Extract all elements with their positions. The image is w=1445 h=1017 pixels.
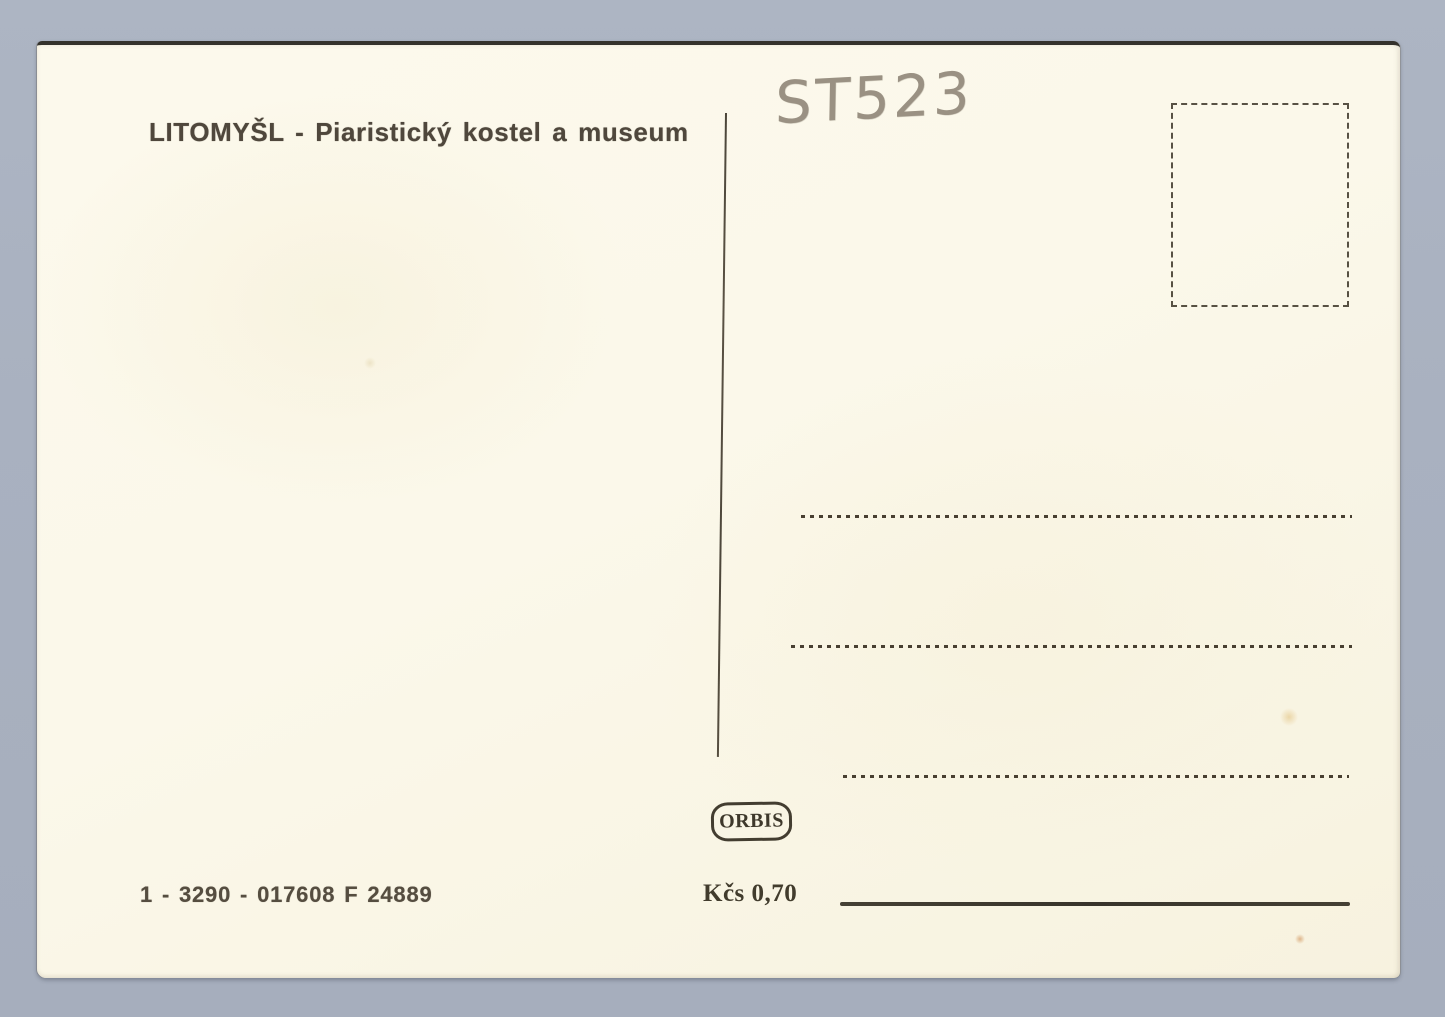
handwritten-inventory-number: ST523 xyxy=(775,64,974,132)
address-dotted-line-3 xyxy=(843,775,1349,778)
postcard-caption: LITOMYŠL - Piaristický kostel a museum xyxy=(149,117,689,148)
photo-background: LITOMYŠL - Piaristický kostel a museum S… xyxy=(0,0,1445,1017)
postcard-back: LITOMYŠL - Piaristický kostel a museum S… xyxy=(37,41,1400,978)
stamp-box xyxy=(1171,103,1349,307)
address-dotted-line-2 xyxy=(791,645,1352,648)
center-divider-line xyxy=(717,113,727,757)
address-dotted-line-1 xyxy=(801,515,1352,518)
price-label: Kčs 0,70 xyxy=(703,880,797,908)
publisher-logo: ORBIS xyxy=(711,801,793,841)
publisher-logo-text: ORBIS xyxy=(719,809,784,833)
catalog-number: 1 - 3290 - 017608 F 24889 xyxy=(140,882,433,908)
bottom-solid-line xyxy=(840,902,1350,906)
